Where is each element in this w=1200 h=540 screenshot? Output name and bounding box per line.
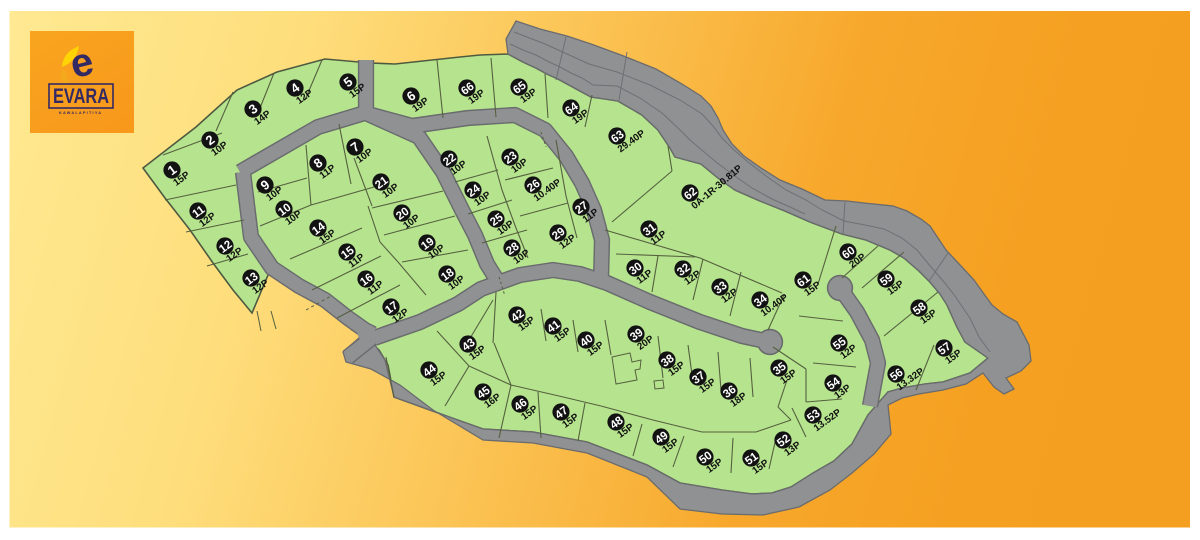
svg-text:KAWALAPITIYA: KAWALAPITIYA xyxy=(59,111,103,115)
svg-text:EVARA: EVARA xyxy=(53,85,109,108)
